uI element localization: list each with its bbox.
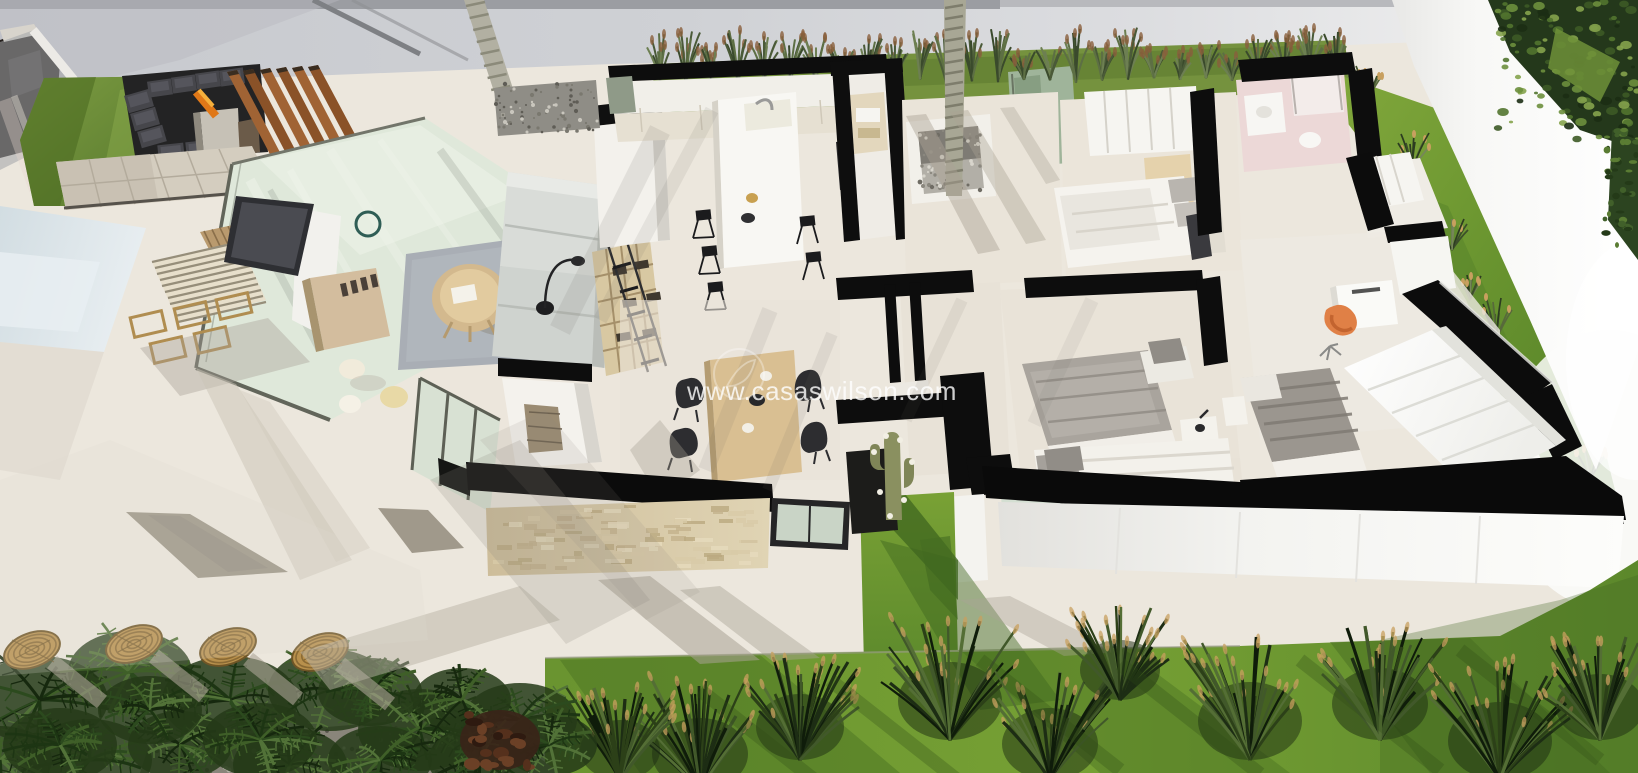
svg-text:www.casaswilson.com: www.casaswilson.com [686,376,957,406]
